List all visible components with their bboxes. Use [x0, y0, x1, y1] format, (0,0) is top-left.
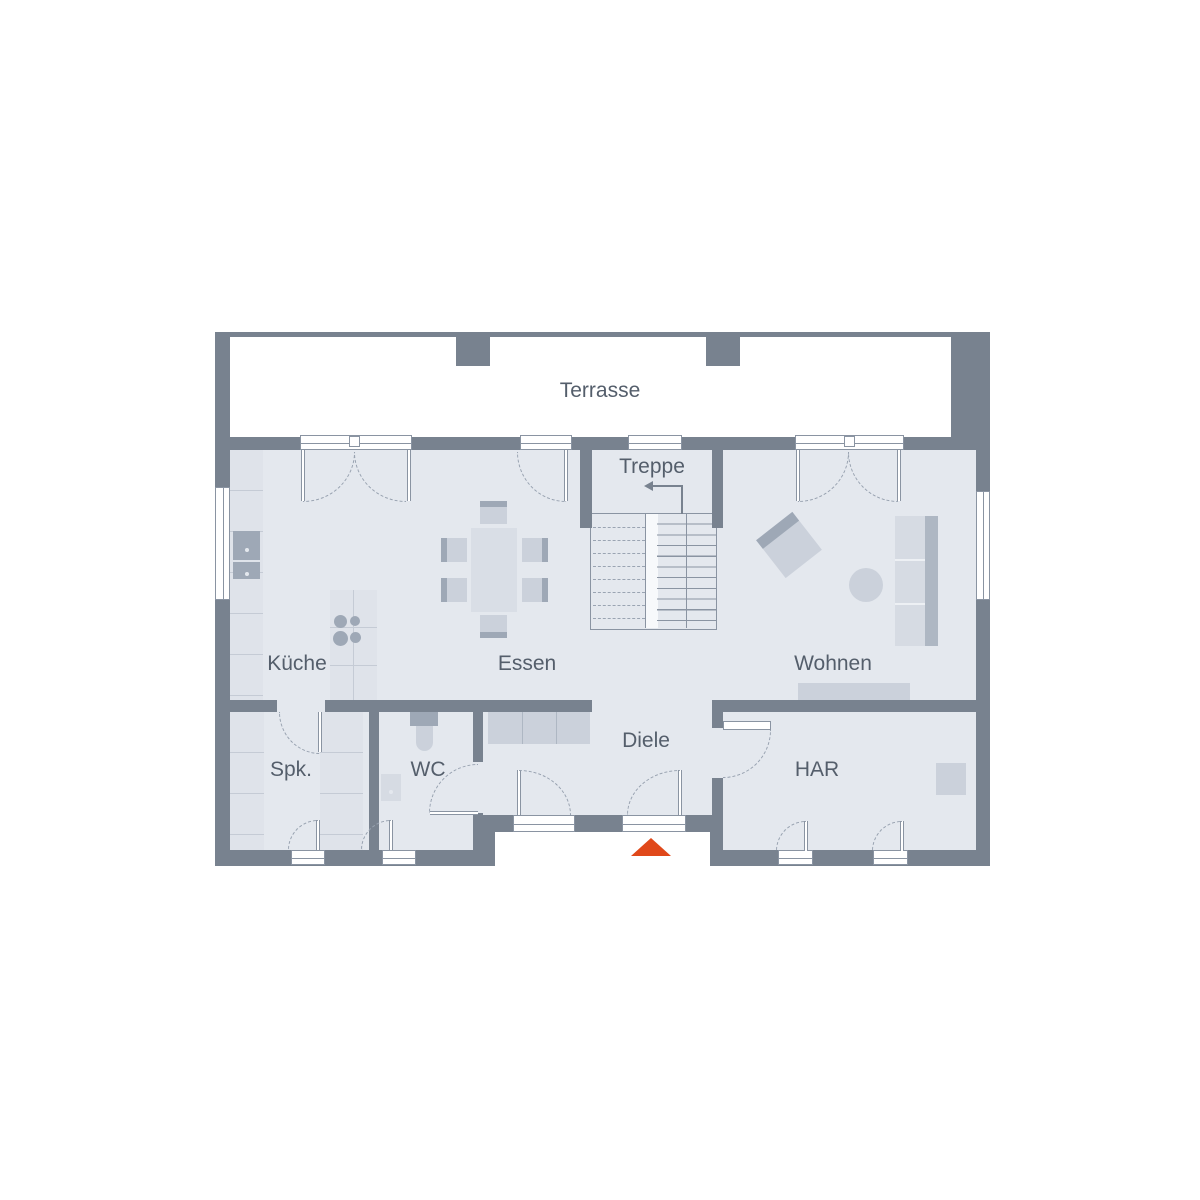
wall-north — [230, 437, 300, 450]
stair-tread — [593, 618, 645, 619]
stairs — [590, 513, 717, 630]
entrance-arrow-icon — [631, 838, 671, 856]
kitchen-island — [330, 590, 377, 700]
window — [291, 850, 325, 865]
wall-stair-left — [580, 450, 592, 528]
dining-chair — [480, 615, 507, 638]
wall-right — [976, 600, 990, 866]
stair-tread — [593, 540, 645, 541]
terrace-pillar — [456, 337, 490, 366]
door-frame-terrace-dining — [520, 435, 572, 450]
stair-tread — [593, 566, 645, 567]
wall-interior — [325, 700, 592, 712]
kitchen-appliance — [233, 562, 260, 579]
door-center-post — [844, 436, 855, 447]
window — [778, 850, 813, 865]
pantry-shelf — [320, 712, 363, 850]
utility-appliance — [936, 763, 966, 795]
room-label-spk: Spk. — [270, 758, 312, 782]
washbasin — [381, 774, 401, 801]
toilet — [410, 712, 438, 726]
sofa — [895, 516, 938, 646]
wall-north — [904, 437, 951, 450]
window — [976, 491, 990, 600]
floor-plan: Terrasse Treppe Küche Essen Wohnen Spk. … — [0, 0, 1200, 1200]
room-label-wc: WC — [411, 758, 446, 782]
wall-hall-south — [575, 815, 622, 832]
stair-tread — [593, 605, 645, 606]
door-leaf — [407, 450, 411, 501]
dining-chair — [441, 538, 467, 562]
stair-tread — [593, 579, 645, 580]
cooktop-burner — [350, 616, 360, 626]
door-frame-hall-side — [513, 815, 575, 832]
stair-tread — [593, 592, 645, 593]
toilet-bowl — [416, 726, 433, 751]
entrance-porch — [495, 832, 710, 850]
wall-left — [215, 332, 230, 487]
wall-terrace-right — [951, 332, 990, 450]
pantry-shelf — [230, 712, 264, 850]
kitchen-sink — [233, 531, 260, 560]
cooktop-burner — [333, 631, 348, 646]
wall-left — [215, 600, 230, 866]
stair-direction-arrow — [644, 481, 689, 514]
wall-interior — [712, 700, 976, 712]
window — [215, 487, 230, 600]
room-label-terrasse: Terrasse — [560, 379, 641, 403]
wall-south-left — [215, 850, 495, 866]
room-label-essen: Essen — [498, 652, 556, 676]
wall-stair-right — [712, 450, 723, 528]
window — [873, 850, 908, 865]
stair-center-line — [686, 514, 687, 628]
wall-wc-hall — [473, 712, 483, 762]
wall-terrace-top — [215, 332, 990, 337]
room-label-diele: Diele — [622, 729, 670, 753]
wall-right — [976, 450, 990, 491]
dining-chair — [522, 538, 548, 562]
wall-north — [572, 437, 628, 450]
dining-chair — [480, 501, 507, 524]
door-leaf — [723, 721, 771, 730]
room-label-treppe: Treppe — [619, 455, 685, 479]
door-center-post — [349, 436, 360, 447]
cooktop-burner — [334, 615, 347, 628]
cooktop-burner — [350, 632, 361, 643]
wall-interior — [230, 700, 277, 712]
wall-porch-left — [473, 832, 495, 866]
wall-north — [412, 437, 520, 450]
dining-chair — [441, 578, 467, 602]
wall-south-har — [710, 850, 990, 866]
room-label-har: HAR — [795, 758, 839, 782]
wall-hall-south — [473, 815, 513, 832]
room-label-kueche: Küche — [267, 652, 327, 676]
wall-hall-south — [686, 815, 712, 832]
stair-tread — [593, 553, 645, 554]
wardrobe — [488, 710, 590, 744]
window — [628, 435, 682, 450]
wall-north — [682, 437, 795, 450]
terrace-pillar — [706, 337, 740, 366]
window — [382, 850, 416, 865]
stair-tread — [593, 527, 645, 528]
dining-chair — [522, 578, 548, 602]
door-frame-entrance — [622, 815, 686, 832]
wall-har-left — [712, 712, 723, 728]
room-label-wohnen: Wohnen — [794, 652, 872, 676]
dining-table — [471, 528, 517, 612]
sofa-backrest — [925, 516, 938, 646]
coffee-table — [849, 568, 883, 602]
